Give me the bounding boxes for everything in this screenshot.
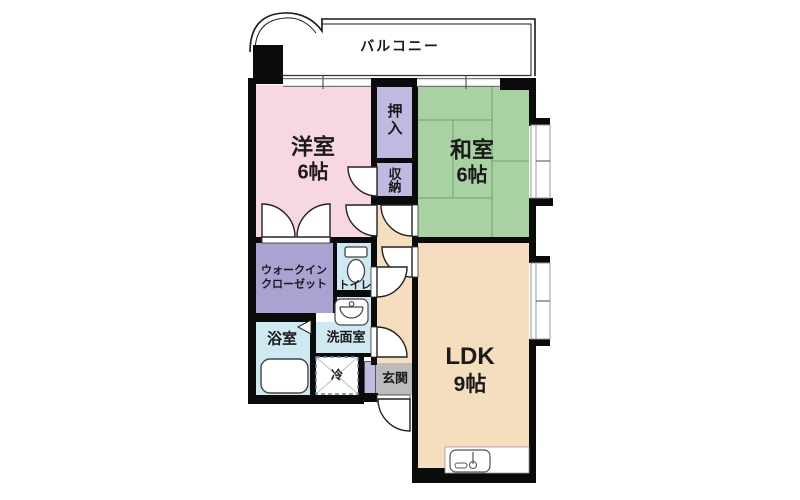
label-shuno: 収納 [385, 167, 404, 193]
door-arc-entrance [378, 399, 410, 431]
label-western-room: 洋室 [291, 134, 335, 159]
label-balcony: バルコニー [360, 38, 440, 54]
label-japanese-size: 6帖 [456, 165, 487, 188]
label-washroom: 洗面室 [326, 331, 365, 346]
label-bath: 浴室 [267, 330, 297, 347]
label-entrance: 玄関 [382, 372, 408, 387]
label-fridge: 冷 [331, 369, 343, 383]
floor-plan: バルコニー 洋室 6帖 押入 収納 和室 6帖 LDK 9帖 ウォークイン クロ… [0, 0, 800, 500]
label-western-size: 6帖 [297, 162, 328, 185]
side-windows [531, 125, 550, 339]
hallway [377, 200, 412, 363]
label-oshiire: 押入 [384, 103, 405, 137]
label-wic-line1: ウォークイン [261, 265, 327, 278]
label-japanese-room: 和室 [450, 137, 494, 162]
label-toilet: トイレ [339, 280, 372, 293]
label-ldk: LDK [445, 343, 494, 371]
shoe-cabinet [364, 361, 376, 396]
label-ldk-size: 9帖 [454, 373, 487, 397]
label-wic-line2: クローゼット [261, 279, 327, 292]
